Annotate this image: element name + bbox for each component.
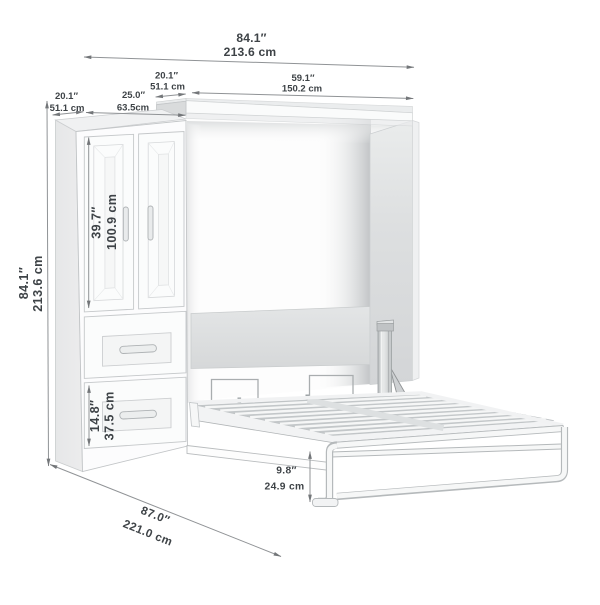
svg-text:9.8″: 9.8″ [276,466,296,477]
svg-text:14.8″: 14.8″ [88,400,102,433]
svg-text:84.1″: 84.1″ [236,31,266,45]
svg-text:24.9 cm: 24.9 cm [265,482,305,493]
svg-text:51.1 cm: 51.1 cm [50,103,85,114]
svg-text:25.0″: 25.0″ [122,90,145,101]
svg-text:213.6 cm: 213.6 cm [31,255,45,311]
svg-text:51.1 cm: 51.1 cm [150,81,185,92]
svg-text:84.1″: 84.1″ [17,267,31,300]
svg-text:150.2 cm: 150.2 cm [282,83,322,94]
svg-text:39.7″: 39.7″ [89,206,103,239]
svg-text:59.1″: 59.1″ [291,73,314,84]
svg-text:63.5cm: 63.5cm [117,102,149,113]
svg-text:100.9 cm: 100.9 cm [105,194,119,250]
svg-text:37.5 cm: 37.5 cm [103,391,117,440]
svg-text:20.1″: 20.1″ [55,91,78,102]
svg-text:20.1″: 20.1″ [155,70,178,81]
svg-text:213.6 cm: 213.6 cm [224,45,277,59]
